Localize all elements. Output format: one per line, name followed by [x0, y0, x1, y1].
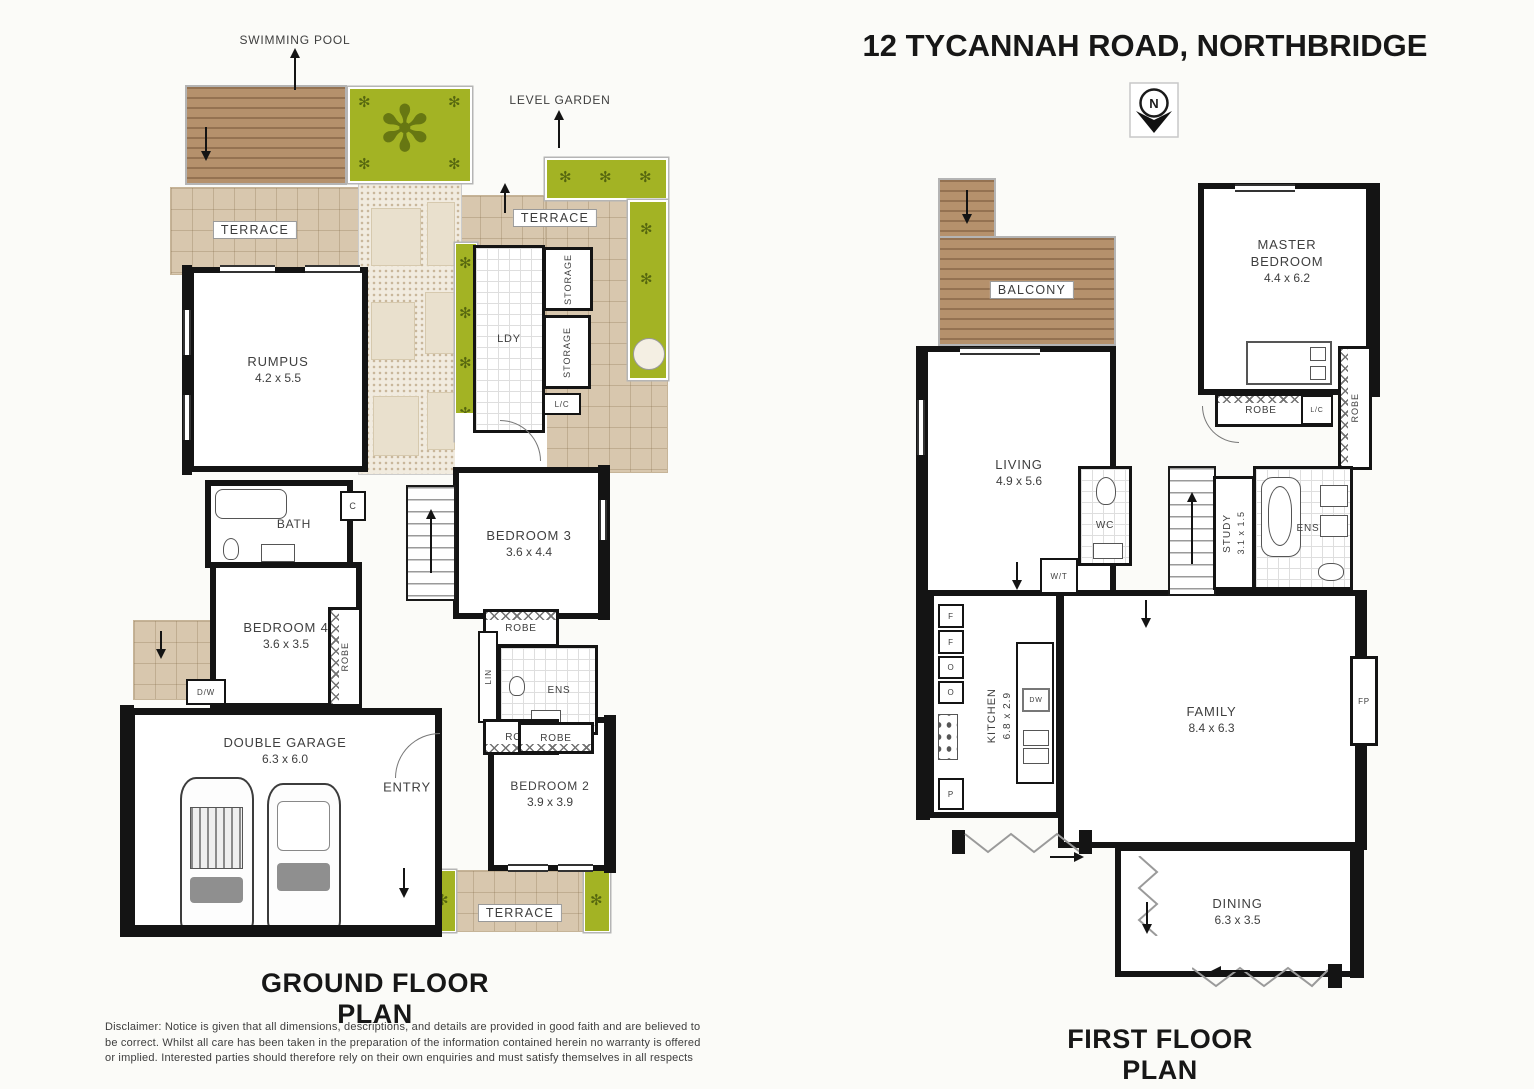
room-dw: D/W: [186, 679, 226, 705]
terrace-arrow-icon: [504, 187, 506, 213]
bed: [1246, 341, 1332, 385]
room-ensuite-first: ENS: [1253, 466, 1353, 590]
fridge-box: F: [938, 630, 964, 654]
lc-first-label: L/C: [1310, 407, 1323, 414]
oven-box: O: [938, 656, 964, 679]
terrace-bottom-garden-right: ✻: [584, 870, 610, 932]
fridge-box: F: [938, 604, 964, 628]
robe-bedroom3-label: ROBE: [505, 623, 537, 634]
room-wc: WC: [1078, 466, 1132, 566]
window: [558, 864, 593, 872]
porch-arrow-icon: [403, 868, 405, 894]
window: [917, 400, 925, 455]
room-linen-cupboard: L/C: [543, 393, 581, 415]
robe-wall-label: ROBE: [1350, 393, 1360, 423]
room-family: FAMILY 8.4 x 6.3: [1058, 590, 1365, 848]
terrace-bottom-tiles: [430, 870, 610, 932]
wall-segment: [916, 590, 930, 820]
terrace-left-tag: TERRACE: [213, 221, 297, 239]
dishwasher-label: DW: [1029, 697, 1042, 704]
fridge1-label: F: [948, 612, 954, 621]
master-name-line2: BEDROOM: [1251, 254, 1324, 269]
dining-name: DINING: [1212, 896, 1262, 911]
dishwasher-box: DW: [1022, 688, 1050, 712]
garage-name: DOUBLE GARAGE: [223, 735, 346, 750]
page-title: 12 TYCANNAH ROAD, NORTHBRIDGE: [830, 28, 1460, 64]
pillow: [1310, 347, 1326, 361]
bedroom2-name: BEDROOM 2: [510, 779, 589, 793]
garage-dims: 6.3 x 6.0: [262, 752, 308, 766]
toilet: [1318, 563, 1344, 581]
basin: [1093, 543, 1123, 559]
window: [599, 500, 607, 540]
stepping-stone: [371, 302, 415, 360]
bathtub: [215, 489, 287, 519]
master-name-line1: MASTER: [1258, 237, 1317, 252]
swimming-pool-arrow-icon: [294, 52, 296, 90]
plant-icon: ✻: [590, 893, 603, 908]
robe-wall: ROBE: [1338, 346, 1372, 470]
dining-dims: 6.3 x 3.5: [1214, 913, 1260, 927]
pantry-box: P: [938, 778, 964, 810]
sink: [1023, 730, 1049, 746]
bathtub: [1261, 477, 1301, 557]
planter-circle: [633, 338, 665, 370]
flow-arrow-icon: [1016, 562, 1018, 586]
floorplan-page: 12 TYCANNAH ROAD, NORTHBRIDGE N SWIMMING…: [0, 0, 1534, 1089]
fireplace: FP: [1350, 656, 1378, 746]
robe-bedroom4-label: ROBE: [340, 642, 350, 672]
window: [960, 347, 1040, 355]
sink: [1023, 748, 1049, 764]
bath-label: BATH: [277, 517, 311, 531]
room-storage-top: STORAGE: [543, 247, 593, 311]
window: [305, 265, 360, 273]
window: [183, 310, 191, 355]
bifold-doors: [952, 828, 1092, 858]
wall-segment: [604, 715, 616, 873]
fridge2-label: F: [948, 638, 954, 647]
wall-segment: [182, 265, 192, 475]
window: [1235, 184, 1295, 192]
study-name: STUDY: [1222, 514, 1233, 553]
cupboard-label: C: [349, 501, 356, 511]
plant-icon: ✻: [639, 170, 652, 185]
living-dims: 4.9 x 5.6: [996, 474, 1042, 488]
balcony-tag: BALCONY: [990, 281, 1074, 299]
bedroom4-dims: 3.6 x 3.5: [263, 637, 309, 651]
bathtub-basin: [1268, 486, 1292, 546]
family-name: FAMILY: [1186, 704, 1236, 719]
plant-icon: ✻: [459, 356, 472, 371]
robe-bedroom4: ROBE: [328, 607, 362, 707]
wall-segment: [598, 465, 610, 620]
kitchen-island: DW: [1016, 642, 1054, 784]
deck-arrow-icon: [205, 127, 207, 157]
bedroom3-dims: 3.6 x 4.4: [506, 545, 552, 559]
robe-master-label: ROBE: [1245, 405, 1277, 416]
toilet: [509, 676, 525, 696]
storage-top-label: STORAGE: [563, 254, 573, 305]
toilet: [1096, 477, 1116, 505]
wall-segment: [916, 346, 928, 600]
side-path-arrow-icon: [160, 631, 162, 655]
entry-label: ENTRY: [383, 780, 431, 795]
bedroom3-name: BEDROOM 3: [486, 528, 571, 543]
plant-icon: ✻: [378, 97, 432, 161]
car-roof: [277, 801, 330, 851]
balcony-arrow-icon: [966, 190, 968, 220]
rumpus-name: RUMPUS: [247, 354, 308, 369]
vanity: [1320, 485, 1348, 507]
master-dims: 4.4 x 6.2: [1264, 271, 1310, 285]
plant-icon: ✻: [358, 157, 371, 172]
room-cupboard: C: [340, 491, 366, 521]
room-laundry: LDY: [473, 245, 545, 433]
lc-label: L/C: [555, 400, 570, 409]
level-garden-top-bed: ✻ ✻ ✻: [545, 158, 668, 200]
wall-segment: [1350, 842, 1364, 978]
compass-letter: N: [1149, 96, 1158, 111]
oven-box: O: [938, 681, 964, 704]
bedroom4-name: BEDROOM 4: [243, 620, 328, 635]
plant-icon: ✻: [459, 306, 472, 321]
fireplace-label: FP: [1358, 697, 1370, 706]
room-study: STUDY 3.1 x 1.5: [1213, 476, 1255, 590]
robe-bedroom2-label: ROBE: [540, 733, 572, 744]
plant-icon: ✻: [448, 157, 461, 172]
deck-top: [185, 85, 347, 185]
room-garage: DOUBLE GARAGE 6.3 x 6.0: [128, 708, 442, 935]
wall-segment: [120, 925, 442, 937]
room-linen: LIN: [478, 631, 498, 723]
ensuite-ground-label: ENS: [548, 685, 571, 696]
flow-arrow-icon: [1050, 856, 1080, 858]
ground-floor-plan: ✻ ✻ ✻ ✻ ✻ TERRACE TERRACE ✻ ✻ ✻ ✻ ✻: [100, 75, 680, 965]
window: [220, 265, 275, 273]
stepping-stone: [427, 202, 455, 266]
terrace-bottom-tag: TERRACE: [478, 904, 562, 922]
stepping-stone: [427, 392, 455, 450]
wt-label: W/T: [1050, 572, 1067, 581]
door-arc: [1202, 406, 1239, 443]
first-floor-title: FIRST FLOOR PLAN: [1035, 1024, 1285, 1086]
wall-segment: [120, 705, 134, 937]
oven1-label: O: [947, 663, 954, 672]
room-wt: W/T: [1040, 558, 1078, 594]
stairs-up-arrow-icon: [430, 513, 432, 573]
dw-label: D/W: [197, 688, 215, 697]
stepping-stone: [425, 292, 457, 354]
kitchen-name: KITCHEN: [986, 688, 998, 743]
terrace-right-tag: TERRACE: [513, 209, 597, 227]
bedroom2-dims: 3.9 x 3.9: [527, 795, 573, 809]
vanity: [1320, 515, 1348, 537]
plant-icon: ✻: [459, 256, 472, 271]
level-garden-arrow-icon: [558, 114, 560, 148]
first-floor-plan: BALCONY LIVING 4.9 x 5.6 MASTER BEDROOM …: [900, 170, 1480, 1000]
flow-arrow-icon: [1215, 970, 1250, 972]
stepping-stone: [371, 208, 421, 266]
room-bath: BATH: [205, 480, 353, 568]
toilet: [223, 538, 239, 560]
plant-icon: ✻: [640, 222, 653, 237]
car-sedan: [267, 783, 341, 935]
ensuite-first-label: ENS: [1297, 523, 1320, 534]
flow-arrow-icon: [1145, 600, 1147, 624]
plant-icon: ✻: [599, 170, 612, 185]
level-garden-right-bed: ✻ ✻: [628, 200, 668, 380]
plant-icon: ✻: [448, 95, 461, 110]
window: [508, 864, 548, 872]
garden-bed-square: ✻ ✻ ✻ ✻ ✻: [348, 87, 472, 183]
pillow: [1310, 366, 1326, 380]
disclaimer-text: Disclaimer: Notice is given that all dim…: [105, 1020, 705, 1067]
robe-bedroom2: ROBE: [518, 722, 594, 754]
room-bedroom3: BEDROOM 3 3.6 x 4.4: [453, 467, 605, 619]
family-dims: 8.4 x 6.3: [1188, 721, 1234, 735]
north-compass-icon: N: [1129, 82, 1179, 138]
room-storage-bottom: STORAGE: [543, 315, 591, 389]
wc-label: WC: [1096, 520, 1114, 531]
pebble-path: [358, 183, 462, 475]
laundry-label: LDY: [497, 333, 521, 345]
stepping-stone: [373, 396, 419, 456]
pantry-label: P: [948, 790, 954, 799]
oven2-label: O: [947, 688, 954, 697]
room-rumpus: RUMPUS 4.2 x 5.5: [188, 267, 368, 472]
stairs-first-arrow-icon: [1191, 496, 1193, 564]
plant-icon: ✻: [358, 95, 371, 110]
car-ute: [180, 777, 254, 935]
living-name: LIVING: [995, 457, 1042, 472]
kitchen-dims: 6.8 x 2.9: [1002, 692, 1013, 739]
plant-icon: ✻: [559, 170, 572, 185]
vanity: [261, 544, 295, 562]
flow-arrow-icon: [1146, 902, 1148, 930]
rumpus-dims: 4.2 x 5.5: [255, 371, 301, 385]
window: [183, 395, 191, 440]
linen-label: LIN: [484, 669, 493, 684]
storage-bottom-label: STORAGE: [562, 327, 572, 378]
room-kitchen: KITCHEN 6.8 x 2.9 F F O O P DW: [928, 590, 1062, 818]
cooktop: [938, 714, 958, 760]
linen-cupboard-first: L/C: [1301, 395, 1333, 425]
study-dims: 3.1 x 1.5: [1236, 511, 1246, 555]
plant-icon: ✻: [640, 272, 653, 287]
